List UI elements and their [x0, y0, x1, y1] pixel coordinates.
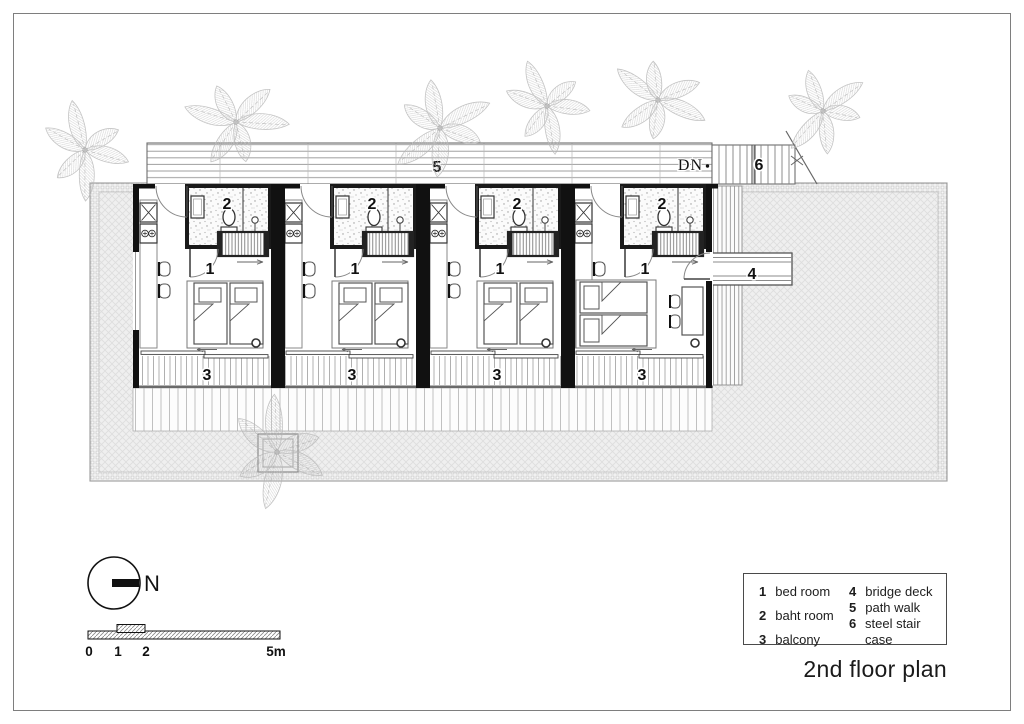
sliding-door — [494, 355, 558, 358]
lamp-icon — [691, 339, 699, 347]
pillow-icon — [525, 288, 547, 302]
legend-label: path walk — [865, 600, 920, 616]
scale-tick: 5m — [266, 644, 286, 659]
stool-icon — [449, 262, 460, 276]
unit-1: 32 1 — [133, 184, 283, 388]
bridge-deck: 4 — [712, 253, 792, 285]
stool-icon — [159, 262, 170, 276]
bathroom-label: 2 — [223, 196, 232, 213]
legend-num: 4 — [849, 584, 856, 600]
twin-beds — [187, 281, 263, 348]
legend-item: 5path walk — [849, 600, 940, 616]
legend-item: 3balcony — [759, 632, 847, 648]
legend-item: 6steel stair case — [849, 616, 940, 648]
pillow-icon — [584, 319, 599, 342]
balcony: 3 — [133, 347, 278, 388]
legend-item: 4bridge deck — [849, 584, 940, 600]
legend-item: 1bed room — [759, 584, 847, 600]
sliding-door — [286, 351, 350, 354]
legend-label: bed room — [775, 584, 830, 600]
legend-item: 2baht room — [759, 608, 847, 624]
north-arrow: N — [88, 557, 160, 609]
sliding-door — [141, 351, 205, 354]
stool-icon — [304, 284, 315, 298]
stool-icon — [594, 262, 605, 276]
sliding-door — [576, 351, 640, 354]
balcony-label: 3 — [348, 367, 357, 384]
wardrobe — [363, 232, 413, 256]
dn-dot — [706, 164, 709, 167]
pillow-icon — [489, 288, 511, 302]
shower-icon — [542, 217, 548, 223]
wardrobe — [508, 232, 558, 256]
balcony: 3 — [568, 347, 713, 388]
balcony-label: 3 — [638, 367, 647, 384]
chair-icon — [670, 315, 680, 328]
pillow-icon — [235, 288, 257, 302]
pillow-icon — [380, 288, 402, 302]
legend-num: 1 — [759, 584, 766, 600]
stool-icon — [449, 284, 460, 298]
bridge-deck-label: 4 — [748, 266, 757, 283]
sliding-door — [431, 351, 495, 354]
legend-column-1: 1bed room 2baht room 3balcony — [759, 584, 847, 648]
sliding-door — [349, 355, 413, 358]
desk-icon — [682, 287, 703, 335]
lamp-icon — [252, 339, 260, 347]
sliding-door — [204, 355, 268, 358]
twin-beds — [576, 280, 656, 348]
twin-beds — [332, 281, 408, 348]
stool-icon — [159, 284, 170, 298]
legend-label: bridge deck — [865, 584, 932, 600]
lamp-icon — [397, 339, 405, 347]
bedroom-label: 1 — [206, 261, 215, 278]
unit-4: 32 1 — [568, 184, 718, 388]
scale-tick: 0 — [85, 644, 93, 659]
legend-num: 6 — [849, 616, 856, 648]
legend-num: 5 — [849, 600, 856, 616]
chair-icon — [670, 295, 680, 308]
bedroom-label: 1 — [351, 261, 360, 278]
lamp-icon — [542, 339, 550, 347]
twin-beds — [477, 281, 553, 348]
shower-icon — [252, 217, 258, 223]
drawing-sheet: 45DN632 132 132 132 1 N0125m 1bed room 2… — [0, 0, 1024, 724]
stool-icon — [304, 262, 315, 276]
scale-tick: 2 — [142, 644, 150, 659]
legend-label: steel stair case — [865, 616, 940, 648]
pillow-icon — [344, 288, 366, 302]
balcony-label: 3 — [493, 367, 502, 384]
bathroom-label: 2 — [658, 196, 667, 213]
wardrobe — [653, 232, 703, 256]
north-label: N — [144, 571, 160, 596]
legend-label: baht room — [775, 608, 834, 624]
stair-case-label: 6 — [755, 157, 764, 174]
pillow-icon — [199, 288, 221, 302]
scale-tick: 1 — [114, 644, 122, 659]
north-pointer-icon — [112, 579, 139, 587]
shower-icon — [687, 217, 693, 223]
palm-tree-icon — [612, 61, 708, 141]
balcony: 3 — [278, 347, 423, 388]
palm-tree-icon — [504, 59, 591, 155]
down-direction-label: DN — [678, 157, 703, 174]
unit-3: 32 1 — [423, 184, 573, 388]
balcony-label: 3 — [203, 367, 212, 384]
bathroom-label: 2 — [368, 196, 377, 213]
pillow-icon — [584, 286, 599, 309]
balcony: 3 — [423, 347, 568, 388]
wardrobe — [218, 232, 268, 256]
legend-box: 1bed room 2baht room 3balcony 4bridge de… — [743, 573, 947, 645]
palm-tree-icon — [785, 68, 866, 154]
bedroom-label: 1 — [641, 261, 650, 278]
scale-bar: 0125m — [85, 625, 286, 660]
shower-icon — [397, 217, 403, 223]
bedroom-label: 1 — [496, 261, 505, 278]
unit-2: 32 1 — [278, 184, 428, 388]
page-title: 2nd floor plan — [703, 656, 947, 683]
legend-num: 2 — [759, 608, 766, 624]
bathroom-label: 2 — [513, 196, 522, 213]
lower-deck-band — [133, 388, 712, 431]
legend-column-2: 4bridge deck 5path walk 6steel stair cas… — [849, 584, 940, 648]
sliding-door — [639, 355, 703, 358]
legend-num: 3 — [759, 632, 766, 648]
legend-label: balcony — [775, 632, 820, 648]
